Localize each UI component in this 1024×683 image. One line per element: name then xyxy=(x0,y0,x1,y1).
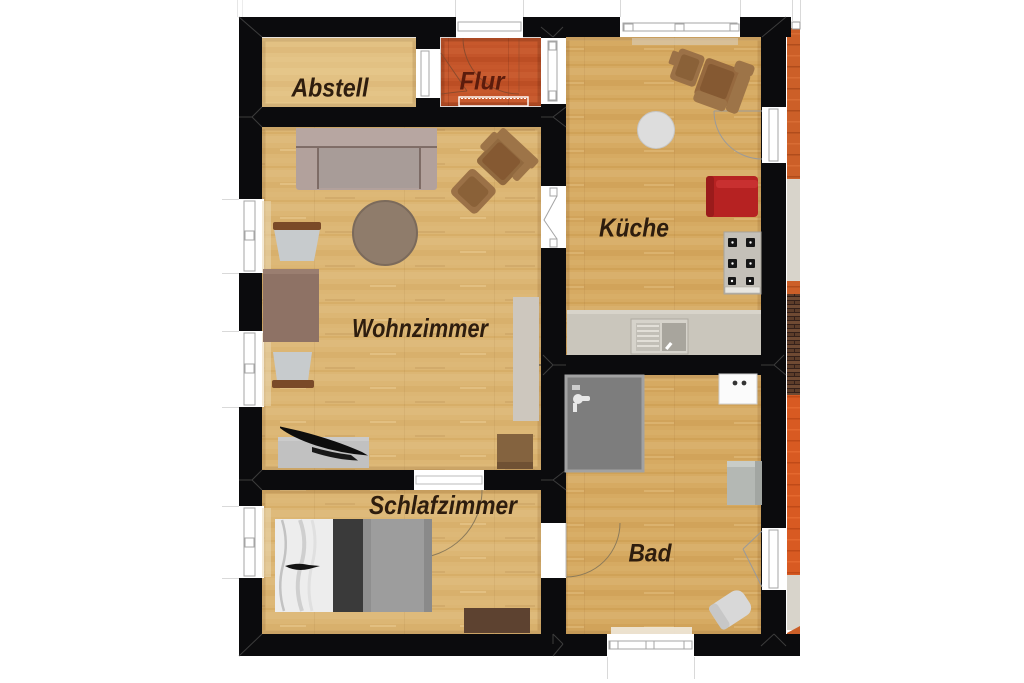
svg-text:Bad: Bad xyxy=(629,540,673,568)
svg-text:Schlafzimmer: Schlafzimmer xyxy=(369,490,519,520)
svg-text:Flur: Flur xyxy=(460,68,506,96)
svg-text:Abstell: Abstell xyxy=(291,73,370,103)
svg-text:Küche: Küche xyxy=(599,213,669,243)
svg-text:Wohnzimmer: Wohnzimmer xyxy=(352,313,490,343)
